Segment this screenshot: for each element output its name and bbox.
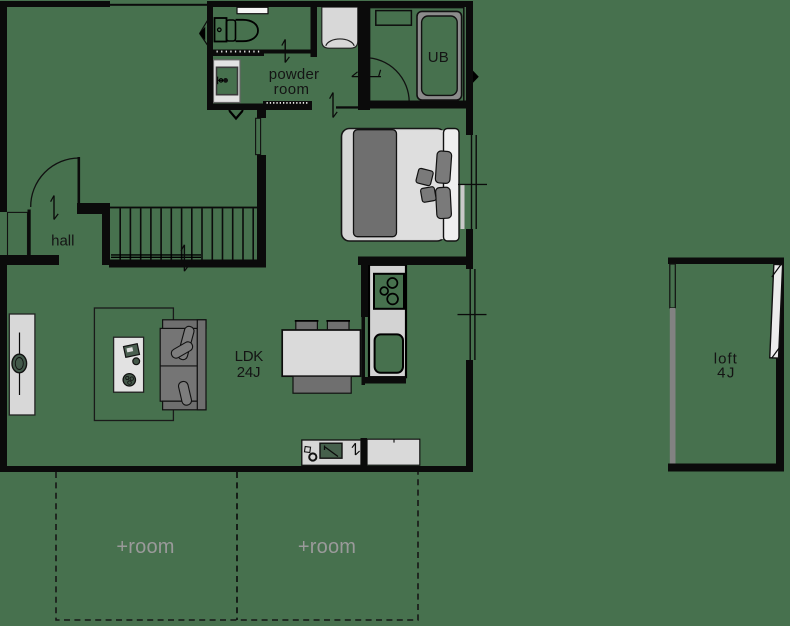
svg-text:+room: +room <box>298 536 356 558</box>
svg-text:hall: hall <box>51 232 74 249</box>
svg-text:24J: 24J <box>237 364 261 381</box>
svg-text:UB: UB <box>428 49 449 66</box>
svg-text:LDK: LDK <box>235 348 264 365</box>
svg-text:+room: +room <box>116 536 174 558</box>
svg-text:4J: 4J <box>717 364 736 381</box>
svg-text:room: room <box>274 81 310 98</box>
